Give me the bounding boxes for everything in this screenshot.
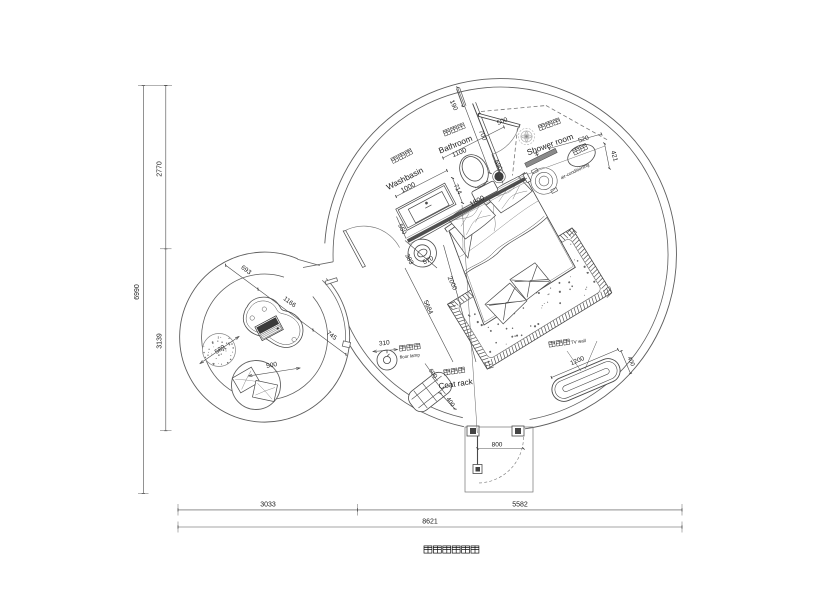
svg-text:2770: 2770 <box>157 161 164 177</box>
svg-text:800: 800 <box>492 442 503 449</box>
svg-text:310: 310 <box>379 339 391 347</box>
svg-text:6990: 6990 <box>134 284 141 300</box>
svg-text:8621: 8621 <box>422 519 438 526</box>
svg-text:3139: 3139 <box>157 333 164 349</box>
svg-text:3033: 3033 <box>260 502 276 509</box>
svg-text:5582: 5582 <box>512 502 528 509</box>
